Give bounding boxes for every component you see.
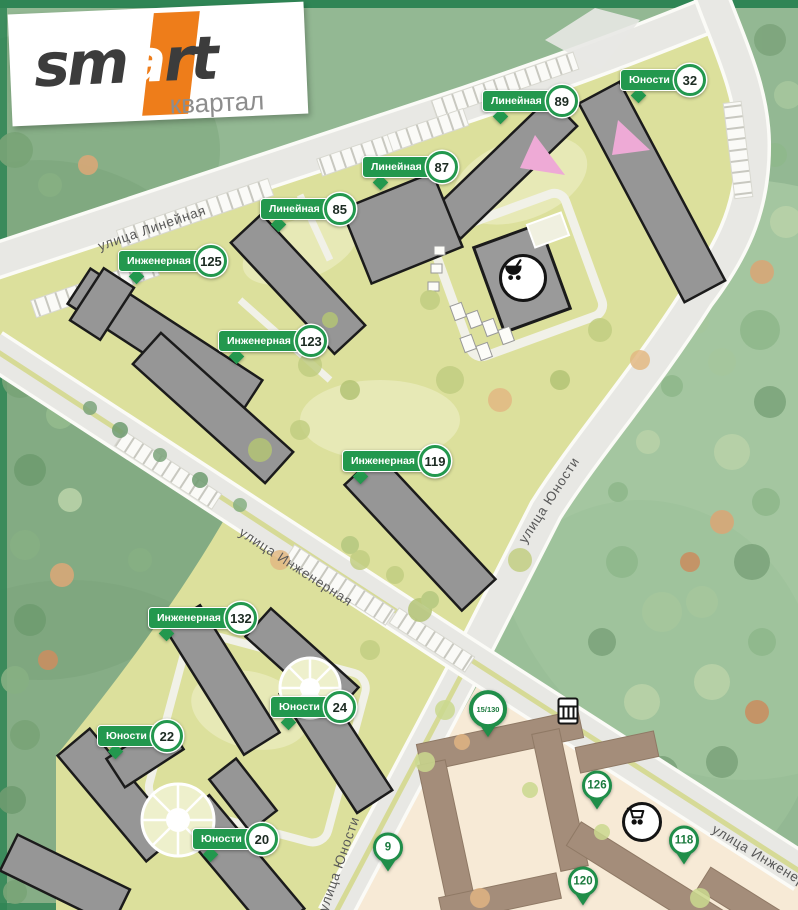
stroller-icon[interactable]	[499, 254, 547, 302]
marker-number: 85	[324, 193, 356, 225]
pin-number: 126	[582, 771, 612, 801]
marker-number: 125	[195, 245, 227, 277]
marker-street-label: Линейная	[260, 198, 329, 220]
marker-number: 22	[151, 720, 183, 752]
address-marker[interactable]: Инженерная119	[342, 445, 451, 477]
number-pin[interactable]: 126	[582, 771, 612, 801]
marker-street-label: Инженерная	[148, 607, 230, 629]
number-pin[interactable]: 120	[568, 867, 598, 897]
logo-subtitle: квартал	[169, 85, 265, 120]
address-marker[interactable]: Инженерная123	[218, 325, 327, 357]
address-marker[interactable]: Юности22	[97, 720, 183, 752]
marker-number: 119	[419, 445, 451, 477]
bus-glyph	[560, 706, 577, 720]
address-marker[interactable]: Линейная89	[482, 85, 578, 117]
bus-stop-icon[interactable]	[558, 698, 579, 725]
marker-street-label: Инженерная	[218, 330, 300, 352]
marker-street-label: Инженерная	[342, 450, 424, 472]
cart-icon[interactable]	[622, 802, 662, 842]
address-marker[interactable]: Инженерная132	[148, 602, 257, 634]
address-marker[interactable]: Линейная85	[260, 193, 356, 225]
marker-number: 20	[246, 823, 278, 855]
logo: smart квартал	[8, 2, 309, 127]
marker-number: 32	[674, 64, 706, 96]
logo-brand-rt: rt	[162, 24, 217, 96]
marker-number: 24	[324, 691, 356, 723]
marker-number: 89	[546, 85, 578, 117]
logo-brand-sm: sm	[32, 27, 127, 101]
marker-street-label: Инженерная	[118, 250, 200, 272]
number-pin[interactable]: 118	[669, 826, 699, 856]
pin-number: 15/130	[469, 690, 507, 728]
pin-number: 118	[669, 826, 699, 856]
marker-number: 87	[426, 151, 458, 183]
number-pin[interactable]: 15/130	[469, 690, 507, 728]
address-marker[interactable]: Линейная87	[362, 151, 458, 183]
marker-street-label: Линейная	[482, 90, 551, 112]
logo-brand-a: a	[125, 26, 166, 98]
address-marker[interactable]: Юности32	[620, 64, 706, 96]
address-marker[interactable]: Инженерная125	[118, 245, 227, 277]
pin-number: 9	[373, 833, 403, 863]
map-canvas: улица Линейнаяулица Инженернаяулица Юнос…	[0, 0, 798, 910]
address-marker[interactable]: Юности20	[192, 823, 278, 855]
marker-number: 132	[225, 602, 257, 634]
marker-street-label: Линейная	[362, 156, 431, 178]
number-pin[interactable]: 9	[373, 833, 403, 863]
marker-street-label: Юности	[270, 696, 329, 718]
address-marker[interactable]: Юности24	[270, 691, 356, 723]
marker-street-label: Юности	[97, 725, 156, 747]
marker-street-label: Юности	[192, 828, 251, 850]
pin-number: 120	[568, 867, 598, 897]
marker-street-label: Юности	[620, 69, 679, 91]
marker-number: 123	[295, 325, 327, 357]
